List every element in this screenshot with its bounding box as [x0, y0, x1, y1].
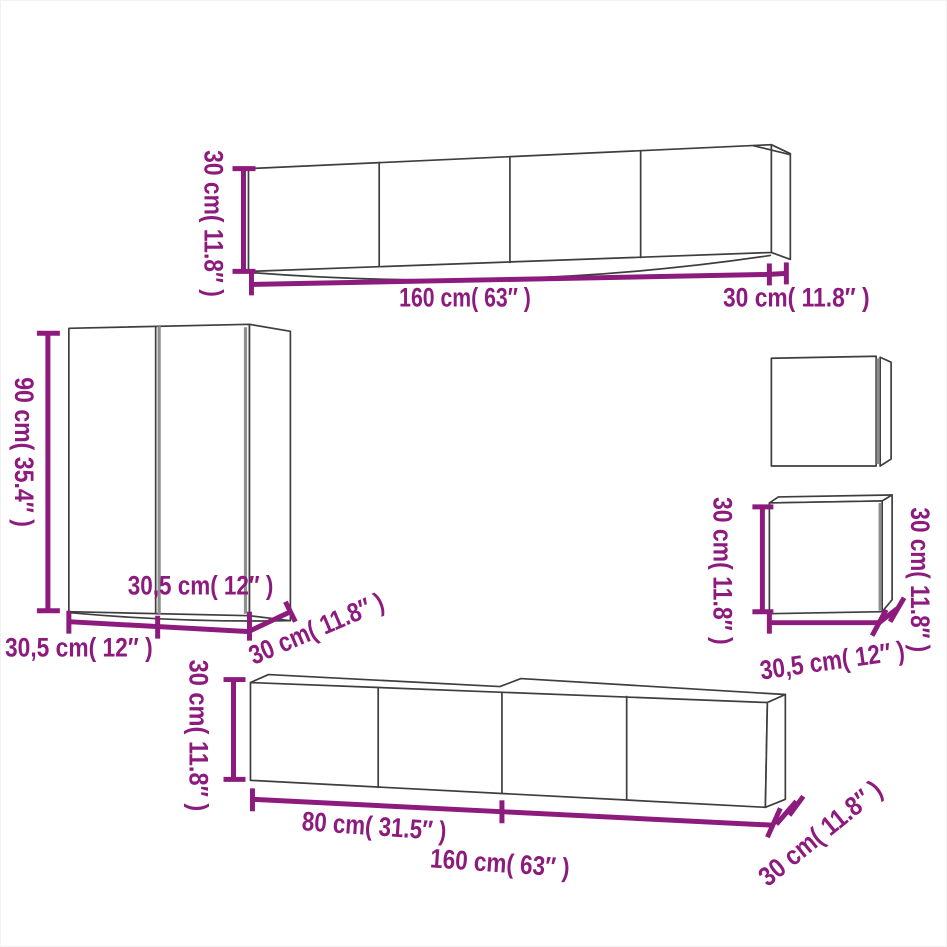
dim-label-bench-height: 30 cm( 11.8″ ): [184, 660, 214, 812]
dim-label-bench-unit-width: 80 cm( 31.5″ ): [301, 806, 447, 846]
dim-label-cube-height-left: 30 cm( 11.8″ ): [707, 497, 737, 645]
dim-label-top-depth: 30 cm( 11.8″ ): [723, 282, 870, 312]
cube-front: [771, 356, 876, 466]
dim-label-tall-height: 90 cm( 35.4″ ): [9, 377, 39, 527]
bottom-tv-bench: [250, 675, 785, 808]
bench-front: [250, 683, 767, 808]
small-cube-lower: [769, 495, 892, 614]
dim-label-bench-width: 160 cm( 63″ ): [429, 843, 570, 883]
dim-line-depth: [769, 273, 786, 274]
cube-front: [769, 501, 882, 614]
furniture-dimension-drawing: 30 cm( 11.8″ ) 160 cm( 63″ ) 30 cm( 11.8…: [1, 1, 946, 946]
dim-label-top-height: 30 cm( 11.8″ ): [199, 150, 229, 297]
dim-label-top-width: 160 cm( 63″ ): [399, 282, 531, 312]
dimension-diagram: 30 cm( 11.8″ ) 160 cm( 63″ ) 30 cm( 11.8…: [0, 0, 947, 947]
dim-label-cube-width: 30,5 cm( 12″ ): [758, 636, 906, 686]
dim-label-cube-height-right: 30 cm( 11.8″ ): [905, 507, 935, 652]
bench-side-panel: [765, 695, 785, 808]
cube-side-panel: [880, 357, 891, 466]
small-cube-upper: [771, 356, 891, 466]
top-cabinet-side-panel: [771, 145, 790, 260]
dim-label-tall-door-width: 30,5 cm( 12″ ): [128, 571, 274, 601]
top-wall-cabinet: [248, 145, 790, 280]
dim-label-tall-width: 30,5 cm( 12″ ): [5, 633, 153, 663]
cube-side-panel: [882, 495, 892, 612]
